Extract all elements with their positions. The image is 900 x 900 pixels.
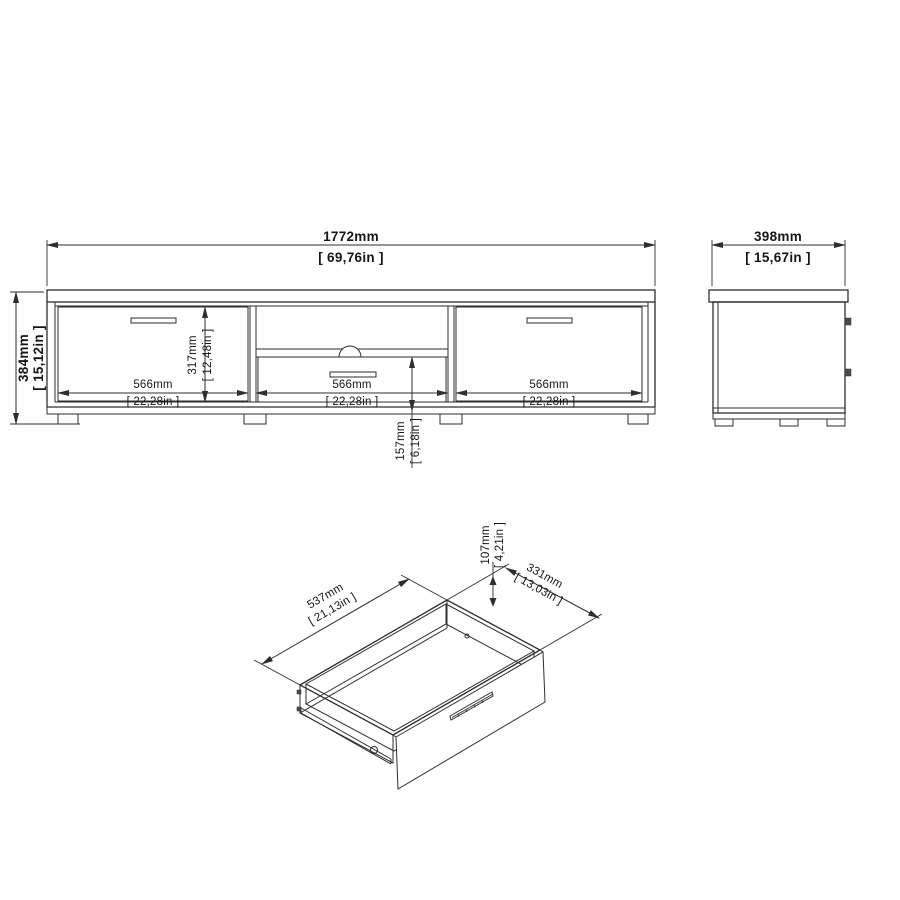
dim-section-2: 566mm [ 22,28in ] (256, 379, 448, 408)
right-door-handle (527, 318, 572, 323)
front-feet (58, 414, 648, 424)
dim-width-mm: 1772mm (323, 229, 379, 244)
technical-drawing-page: 1772mm [ 69,76in ] 384mm [ 15,12in ] 317… (0, 0, 900, 900)
dim-overall-height: 384mm [ 15,12in ] (10, 292, 80, 424)
dim-s3-in: [ 22,28in ] (523, 396, 576, 408)
dim-drawerfront-in: [ 6,18in ] (410, 418, 422, 464)
drawer-isometric-view: 537mm [ 21,13in ] 331mm [ 13,03in ] 107m… (254, 522, 602, 789)
front-top-panel (47, 290, 655, 302)
side-body (713, 302, 845, 413)
dim-s1-in: [ 22,28in ] (127, 396, 180, 408)
dim-drawerfront-mm: 157mm (395, 421, 407, 460)
front-plinth (47, 407, 655, 414)
left-door-handle (131, 318, 176, 323)
dim-height-in: [ 15,12in ] (31, 325, 46, 391)
dim-interior-height: 317mm [ 12,48in ] (187, 307, 214, 402)
dim-drawer-height-arrow-down (490, 598, 497, 607)
dim-s2-mm: 566mm (332, 379, 371, 391)
dim-overall-width: 1772mm [ 69,76in ] (47, 229, 655, 286)
dim-drawer-height-in: [ 4,21in ] (494, 522, 506, 568)
dim-drawer-front-height: 157mm [ 6,18in ] (395, 357, 422, 468)
side-hinge-mark-top (845, 318, 851, 325)
side-view: 398mm [ 15,67in ] (709, 229, 851, 426)
dim-depth-mm: 398mm (754, 229, 802, 244)
dim-interior-in: [ 12,48in ] (202, 329, 214, 382)
middle-drawer-handle (330, 372, 376, 377)
side-hinge-mark-bottom (845, 369, 851, 376)
side-top-panel (709, 290, 848, 302)
dim-drawer-height-mm: 107mm (480, 525, 492, 564)
dim-s2-in: [ 22,28in ] (326, 396, 379, 408)
dim-section-3: 566mm [ 22,28in ] (456, 379, 642, 408)
side-plinth (713, 413, 845, 419)
tv-unit-technical-drawing: 1772mm [ 69,76in ] 384mm [ 15,12in ] 317… (0, 0, 900, 900)
dim-interior-mm: 317mm (187, 335, 199, 374)
dim-section-1: 566mm [ 22,28in ] (58, 379, 248, 408)
side-body-inner (713, 302, 845, 413)
dim-drawer-height: 107mm [ 4,21in ] (480, 522, 506, 607)
front-view: 1772mm [ 69,76in ] 384mm [ 15,12in ] 317… (10, 229, 655, 468)
dim-depth: 398mm [ 15,67in ] (712, 229, 845, 286)
side-feet (715, 419, 845, 426)
dim-drawer-length: 537mm [ 21,13in ] (254, 575, 447, 685)
cable-hole-notch (339, 346, 361, 357)
dim-width-in: [ 69,76in ] (318, 250, 384, 265)
dim-height-mm: 384mm (16, 334, 31, 382)
dim-s1-mm: 566mm (133, 379, 172, 391)
dim-depth-in: [ 15,67in ] (745, 250, 811, 265)
dim-s3-mm: 566mm (529, 379, 568, 391)
dim-drawer-height-arrow-up (490, 576, 497, 585)
